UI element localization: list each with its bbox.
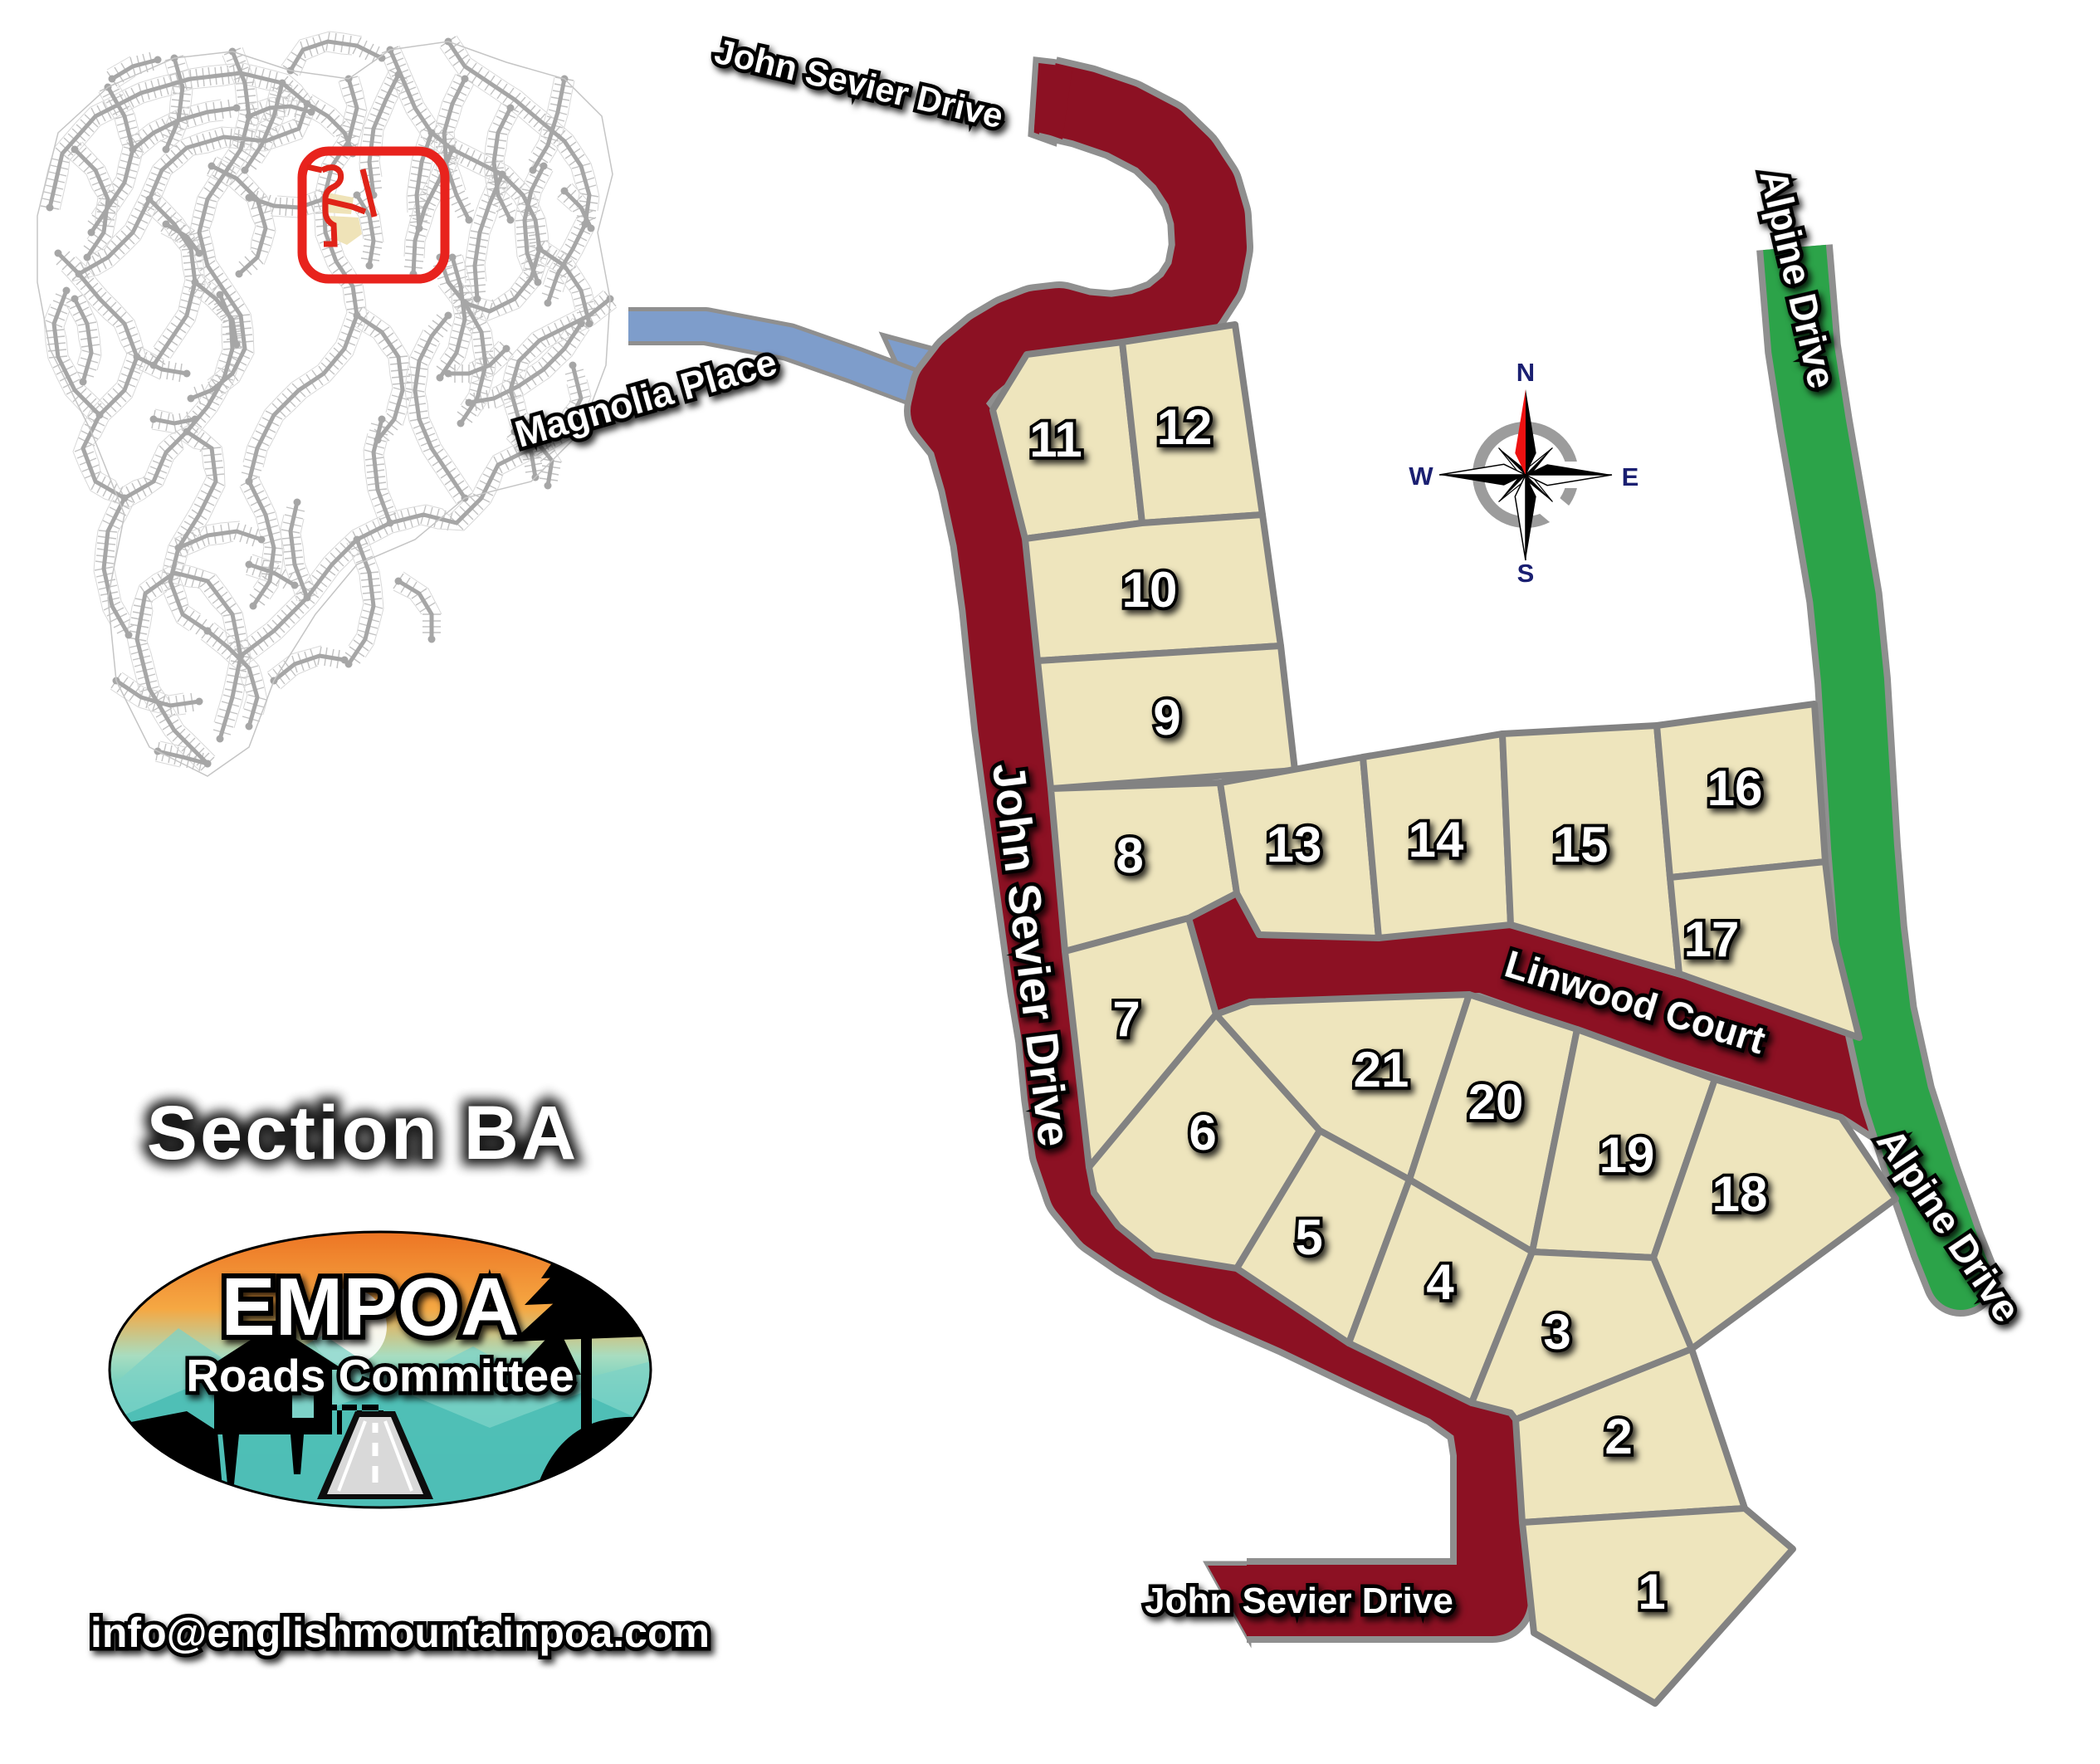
svg-text:10: 10 — [1122, 562, 1178, 618]
svg-text:4: 4 — [1426, 1254, 1454, 1310]
svg-text:8: 8 — [1116, 828, 1143, 883]
svg-text:2: 2 — [1604, 1409, 1632, 1464]
svg-text:info@englishmountainpoa.com: info@englishmountainpoa.com — [90, 1610, 710, 1656]
svg-text:15: 15 — [1553, 817, 1609, 872]
svg-text:S: S — [1517, 559, 1535, 588]
svg-text:Section BA: Section BA — [147, 1091, 579, 1175]
svg-text:19: 19 — [1599, 1127, 1655, 1183]
svg-text:20: 20 — [1468, 1074, 1524, 1130]
svg-text:E: E — [1622, 462, 1639, 491]
svg-text:1: 1 — [1638, 1564, 1665, 1620]
svg-text:EMPOA: EMPOA — [221, 1261, 519, 1352]
svg-text:21: 21 — [1354, 1042, 1409, 1097]
svg-text:17: 17 — [1684, 911, 1740, 967]
svg-text:5: 5 — [1295, 1209, 1322, 1265]
svg-text:3: 3 — [1543, 1304, 1570, 1360]
svg-text:Roads Committee: Roads Committee — [186, 1350, 574, 1401]
svg-text:W: W — [1409, 462, 1433, 491]
svg-text:6: 6 — [1189, 1105, 1216, 1161]
svg-text:7: 7 — [1112, 991, 1140, 1047]
svg-text:12: 12 — [1157, 399, 1213, 455]
svg-text:18: 18 — [1712, 1166, 1768, 1222]
svg-text:9: 9 — [1153, 690, 1180, 745]
svg-text:16: 16 — [1707, 760, 1763, 816]
svg-text:13: 13 — [1267, 817, 1322, 872]
svg-text:14: 14 — [1409, 812, 1464, 867]
svg-text:N: N — [1516, 358, 1535, 387]
svg-text:John Sevier Drive: John Sevier Drive — [1145, 1581, 1453, 1621]
svg-text:11: 11 — [1029, 412, 1082, 467]
